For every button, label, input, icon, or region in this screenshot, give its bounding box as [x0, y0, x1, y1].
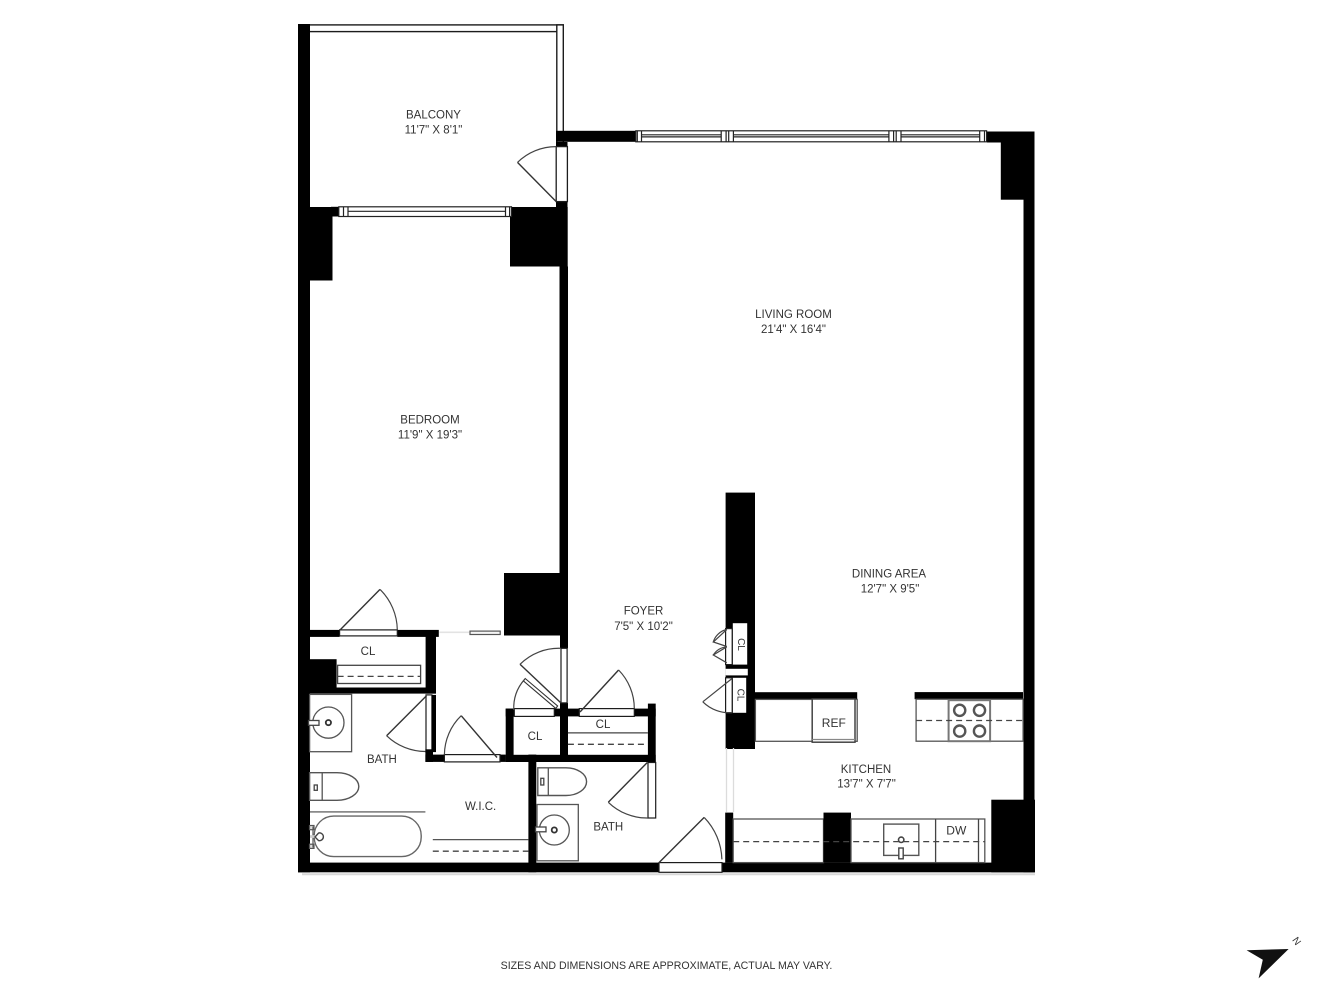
svg-text:REF: REF	[822, 716, 846, 730]
svg-text:BEDROOM: BEDROOM	[400, 415, 459, 427]
svg-text:CL: CL	[734, 689, 745, 702]
svg-text:SIZES AND DIMENSIONS ARE APPRO: SIZES AND DIMENSIONS ARE APPROXIMATE, AC…	[501, 960, 833, 972]
svg-text:DW: DW	[946, 824, 967, 838]
svg-text:BALCONY: BALCONY	[406, 110, 461, 122]
svg-text:11'7" X 8'1": 11'7" X 8'1"	[405, 125, 463, 137]
svg-text:CL: CL	[596, 719, 611, 731]
svg-text:CL: CL	[361, 646, 376, 658]
svg-text:CL: CL	[528, 731, 543, 743]
svg-text:13'7" X 7'7": 13'7" X 7'7"	[837, 779, 896, 791]
svg-text:BATH: BATH	[593, 822, 623, 834]
svg-text:11'9" X 19'3": 11'9" X 19'3"	[398, 430, 462, 442]
svg-text:21'4" X 16'4": 21'4" X 16'4"	[761, 324, 826, 336]
svg-text:FOYER: FOYER	[624, 606, 664, 618]
svg-text:W.I.C.: W.I.C.	[465, 801, 496, 813]
svg-text:12'7" X 9'5": 12'7" X 9'5"	[861, 584, 920, 596]
svg-text:DINING AREA: DINING AREA	[852, 569, 926, 581]
svg-text:BATH: BATH	[367, 754, 397, 766]
svg-text:LIVING ROOM: LIVING ROOM	[755, 309, 832, 321]
svg-text:7'5" X 10'2": 7'5" X 10'2"	[614, 621, 673, 633]
svg-text:CL: CL	[735, 638, 746, 651]
svg-text:KITCHEN: KITCHEN	[841, 764, 891, 776]
